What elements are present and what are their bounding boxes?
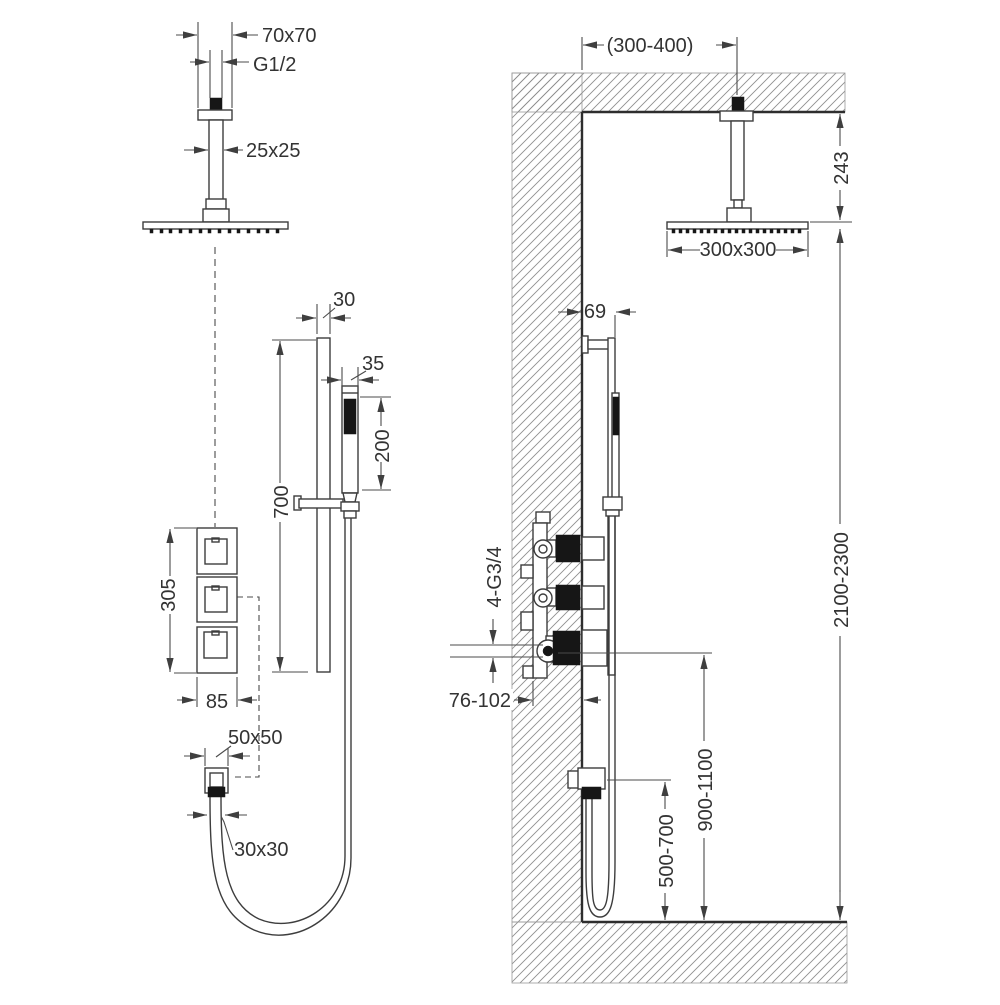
dim-rail-wall-distance: 69 <box>584 301 606 323</box>
valve-handle-side <box>553 631 580 665</box>
front-view: 70x70 G1/2 25x25 30 35 700 <box>143 22 394 935</box>
dim-outlet-flange: 50x50 <box>228 727 283 749</box>
valve-handle-side <box>556 535 580 562</box>
dim-valve-group-width: 85 <box>206 691 228 713</box>
wall-hatch <box>512 73 582 922</box>
rain-head-front <box>143 222 288 233</box>
valve-trim-side <box>582 630 607 666</box>
dim-hand-shower-length: 200 <box>372 429 394 462</box>
wall-outlet-front <box>205 768 228 797</box>
dim-arm-section: 25x25 <box>246 140 301 162</box>
dim-ceiling-flange: 70x70 <box>262 25 317 47</box>
dim-installation-height: 2100-2300 <box>831 532 853 628</box>
dim-hand-shower-width: 35 <box>362 353 384 375</box>
hand-shower-front <box>341 386 359 518</box>
side-view: (300-400) 243 2100-2300 300x300 69 <box>446 35 853 983</box>
shower-installation-diagram: (300-400) 243 2100-2300 300x300 69 <box>0 0 1000 1000</box>
dim-thread: G1/2 <box>253 54 296 76</box>
valve-group-front <box>197 528 237 673</box>
dim-outlet-floor-height: 500-700 <box>656 814 678 887</box>
technical-drawing-page: (300-400) 243 2100-2300 300x300 69 <box>0 0 1000 1000</box>
dim-rail-width: 30 <box>333 289 355 311</box>
side-dimensions: (300-400) 243 2100-2300 300x300 69 <box>446 35 853 920</box>
dim-valve-floor-height: 900-1100 <box>695 748 717 831</box>
dim-arm-wall-distance: (300-400) <box>607 35 694 57</box>
dim-pipe-connections: 4-G3/4 <box>484 546 506 607</box>
dim-recess-depth: 76-102 <box>449 690 511 712</box>
valve-handle-side <box>556 585 580 610</box>
valve-trim-side <box>582 537 604 560</box>
dim-outlet-connection: 30x30 <box>234 839 289 861</box>
ceiling-shower-arm-side <box>720 97 753 222</box>
valve-trim-side <box>582 586 604 609</box>
dim-head-ceiling-distance: 243 <box>831 151 853 184</box>
ceiling-shower-arm-front <box>198 98 232 222</box>
dim-rail-length: 700 <box>271 485 293 518</box>
hand-shower-side <box>603 393 622 516</box>
dim-valve-group-height: 305 <box>158 578 180 611</box>
rain-head-side <box>667 222 808 233</box>
floor-hatch <box>512 922 847 983</box>
dim-head-size: 300x300 <box>700 239 777 261</box>
